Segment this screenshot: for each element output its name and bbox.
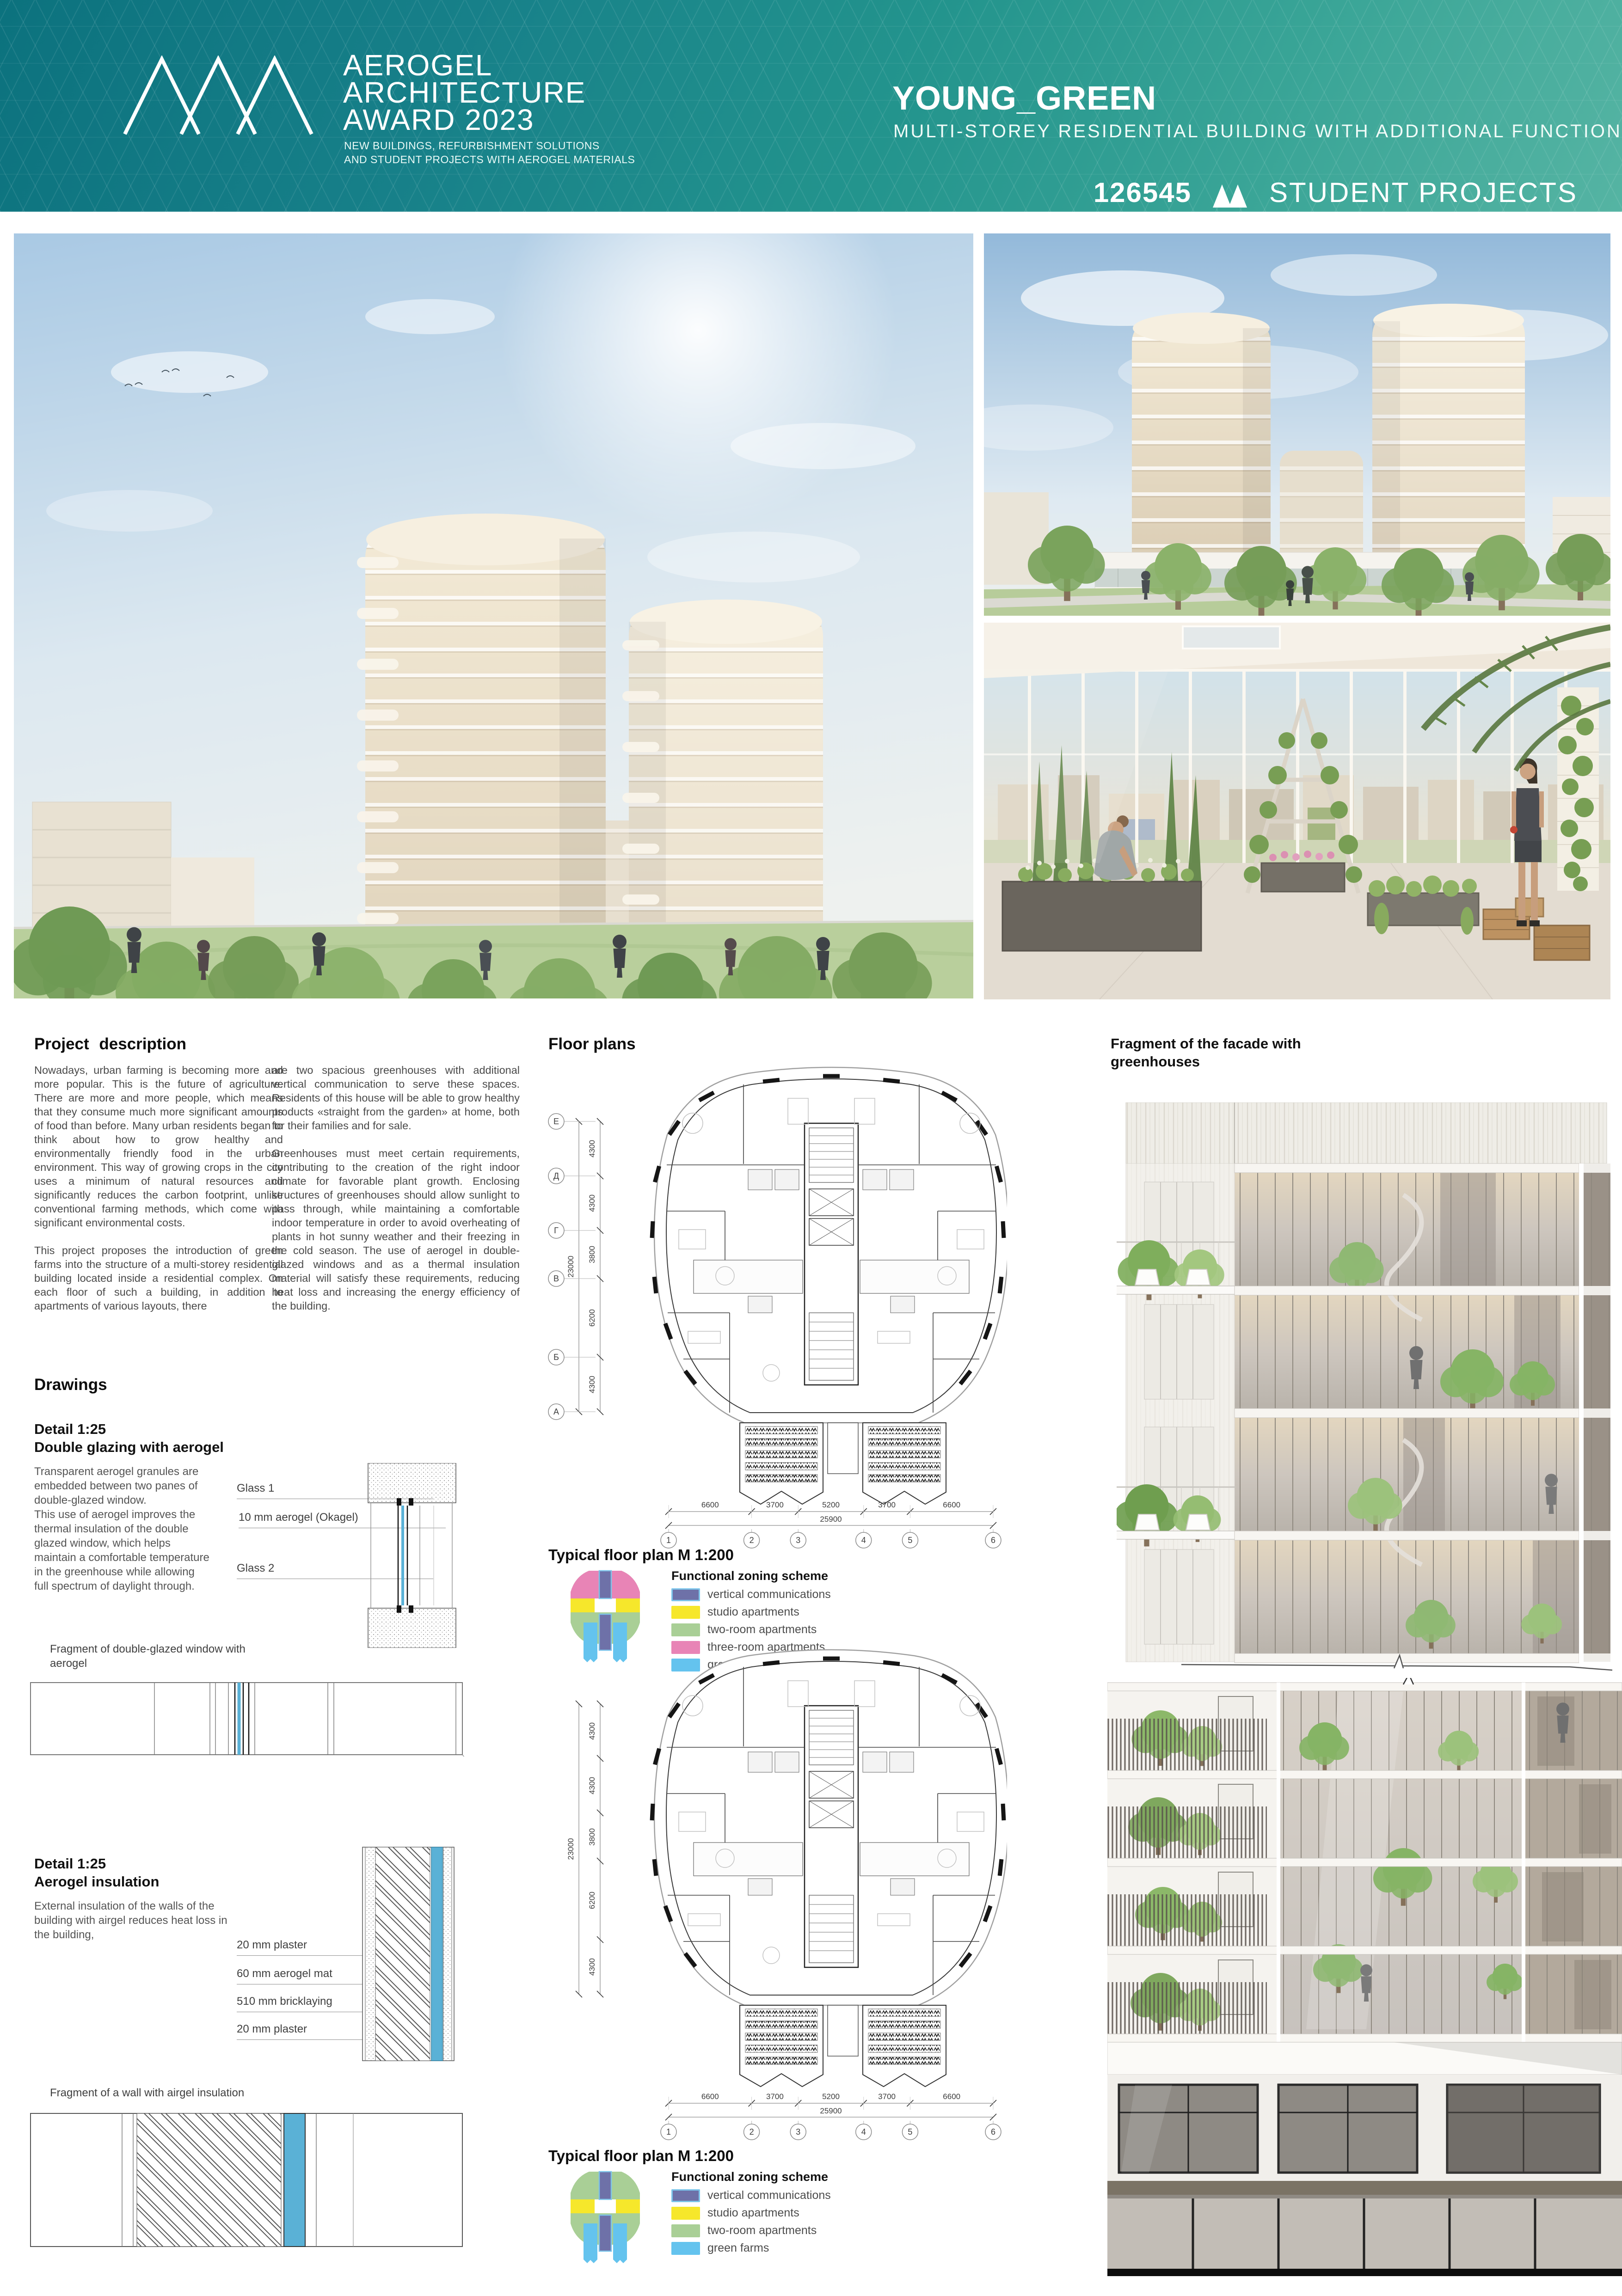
section-title-floor-plans: Floor plans xyxy=(548,1035,636,1054)
floor-plan-1: 6600370052003700660025900123456430043003… xyxy=(531,1054,1007,1551)
svg-text:25900: 25900 xyxy=(820,2106,842,2115)
svg-text:6600: 6600 xyxy=(943,2092,960,2101)
svg-text:2: 2 xyxy=(750,1536,754,1545)
svg-text:3: 3 xyxy=(796,2127,800,2137)
insulation-fragment-caption: Fragment of a wall with airgel insulatio… xyxy=(50,2086,346,2100)
svg-text:А: А xyxy=(553,1407,559,1416)
functional-zoning-legend-2: Functional zoning scheme vertical commun… xyxy=(671,2170,866,2259)
plan-caption-2: Typical floor plan M 1:200 xyxy=(548,2147,734,2165)
svg-text:Б: Б xyxy=(553,1353,559,1362)
award-title: AEROGEL ARCHITECTURE AWARD 2023 xyxy=(343,52,586,134)
svg-text:4300: 4300 xyxy=(588,1376,596,1393)
mountain-icon xyxy=(1211,182,1250,208)
legend-color-swatch xyxy=(671,2189,700,2202)
legend-item: green farms xyxy=(671,2241,866,2255)
svg-text:6600: 6600 xyxy=(701,1500,719,1509)
svg-text:4300: 4300 xyxy=(588,1140,596,1157)
svg-text:23000: 23000 xyxy=(566,1838,575,1860)
svg-text:В: В xyxy=(553,1274,559,1283)
mountain-peaks-icon xyxy=(119,55,321,137)
svg-text:23000: 23000 xyxy=(566,1255,575,1277)
legend-item: studio apartments xyxy=(671,1605,866,1619)
category-label: STUDENT PROJECTS xyxy=(1269,177,1578,208)
glazing-detail-drawing xyxy=(364,1463,459,1648)
svg-text:Е: Е xyxy=(553,1117,559,1126)
section-title-facade: Fragment of the facade with greenhouses xyxy=(1111,1035,1328,1071)
description-paragraph: Nowadays, urban farming is becoming more… xyxy=(34,1063,283,1230)
svg-text:5: 5 xyxy=(908,1536,912,1545)
svg-text:6: 6 xyxy=(991,2127,995,2137)
svg-text:4: 4 xyxy=(861,1536,866,1545)
description-paragraph: This project proposes the introduction o… xyxy=(34,1243,283,1313)
entry-number: 126545 xyxy=(1094,177,1192,208)
project-title: YOUNG_GREEN xyxy=(892,80,1156,117)
svg-text:3700: 3700 xyxy=(878,1500,896,1509)
section-title-drawings: Drawings xyxy=(34,1375,107,1395)
legend-item: vertical communications xyxy=(671,2189,866,2202)
floor-plan-2: 6600370052003700660025900123456430043003… xyxy=(531,1636,1007,2145)
description-paragraph: Greenhouses must meet certain requiremen… xyxy=(272,1146,520,1313)
detail-glazing-body: Transparent aerogel granules are embedde… xyxy=(34,1464,211,1593)
section-title-project-description: Project description xyxy=(34,1035,186,1054)
zoning-diagram-2 xyxy=(566,2169,645,2268)
svg-text:3700: 3700 xyxy=(878,2092,896,2101)
insulation-fragment-drawing xyxy=(30,2111,468,2249)
legend-item: vertical communications xyxy=(671,1588,866,1601)
svg-text:Д: Д xyxy=(553,1171,559,1181)
towers-render-image xyxy=(984,233,1610,616)
insulation-detail-drawing xyxy=(360,1845,458,2063)
svg-text:1: 1 xyxy=(666,1536,671,1545)
svg-text:3800: 3800 xyxy=(588,1246,596,1263)
svg-text:4300: 4300 xyxy=(588,1722,596,1740)
legend-item: studio apartments xyxy=(671,2206,866,2220)
svg-text:4300: 4300 xyxy=(588,1777,596,1794)
plan-caption-1: Typical floor plan M 1:200 xyxy=(548,1546,734,1564)
main-render-image xyxy=(14,233,973,998)
description-column-2: are two spacious greenhouses with additi… xyxy=(272,1063,520,1313)
legend-item: two-room apartments xyxy=(671,1623,866,1636)
detail-insulation-body: External insulation of the walls of the … xyxy=(34,1899,228,1942)
glazing-fragment-drawing xyxy=(30,1682,468,1757)
greenhouse-render-image xyxy=(984,623,1610,999)
svg-text:5: 5 xyxy=(908,2127,912,2137)
legend-color-swatch xyxy=(671,1623,700,1636)
svg-text:5200: 5200 xyxy=(822,2092,840,2101)
svg-text:Г: Г xyxy=(554,1226,559,1235)
svg-text:4: 4 xyxy=(861,2127,866,2137)
legend-color-swatch xyxy=(671,2207,700,2220)
glazing-fragment-caption: Fragment of double-glazed window with ae… xyxy=(50,1642,267,1671)
description-paragraph: are two spacious greenhouses with additi… xyxy=(272,1063,520,1133)
svg-text:3700: 3700 xyxy=(766,1500,784,1509)
svg-text:3800: 3800 xyxy=(588,1828,596,1846)
award-title-line2: ARCHITECTURE xyxy=(343,79,586,106)
svg-text:2: 2 xyxy=(750,2127,754,2137)
legend-item: two-room apartments xyxy=(671,2224,866,2237)
detail-insulation-caption: Detail 1:25 Aerogel insulation xyxy=(34,1855,159,1891)
legend-color-swatch xyxy=(671,2224,700,2237)
header-band: AEROGEL ARCHITECTURE AWARD 2023 NEW BUIL… xyxy=(0,0,1622,212)
award-title-line1: AEROGEL xyxy=(343,52,586,79)
svg-text:4300: 4300 xyxy=(588,1194,596,1212)
svg-text:6600: 6600 xyxy=(701,2092,719,2101)
award-title-line3: AWARD 2023 xyxy=(343,106,586,134)
legend-color-swatch xyxy=(671,1588,700,1601)
svg-text:1: 1 xyxy=(666,2127,671,2137)
award-subtitle: NEW BUILDINGS, REFURBISHMENT SOLUTIONS A… xyxy=(344,139,635,166)
facade-fragment-top xyxy=(1117,1102,1616,1671)
legend-title: Functional zoning scheme xyxy=(671,2170,866,2184)
svg-text:3700: 3700 xyxy=(766,2092,784,2101)
legend-color-swatch xyxy=(671,1606,700,1619)
description-column-1: Nowadays, urban farming is becoming more… xyxy=(34,1063,283,1313)
legend-title: Functional zoning scheme xyxy=(671,1569,866,1583)
legend-color-swatch xyxy=(671,2242,700,2255)
svg-text:25900: 25900 xyxy=(820,1515,842,1524)
project-subtitle: MULTI-STOREY RESIDENTIAL BUILDING WITH A… xyxy=(893,121,1622,142)
detail-glazing-caption: Detail 1:25 Double glazing with aerogel xyxy=(34,1420,224,1456)
svg-text:6200: 6200 xyxy=(588,1309,596,1327)
svg-text:6: 6 xyxy=(991,1536,995,1545)
svg-text:5200: 5200 xyxy=(822,1500,840,1509)
svg-text:6600: 6600 xyxy=(943,1500,960,1509)
svg-text:3: 3 xyxy=(796,1536,800,1545)
svg-text:6200: 6200 xyxy=(588,1892,596,1909)
svg-text:4300: 4300 xyxy=(588,1958,596,1976)
entry-row: 126545 STUDENT PROJECTS xyxy=(1094,177,1578,208)
facade-fragment-bottom xyxy=(1107,1678,1622,2279)
